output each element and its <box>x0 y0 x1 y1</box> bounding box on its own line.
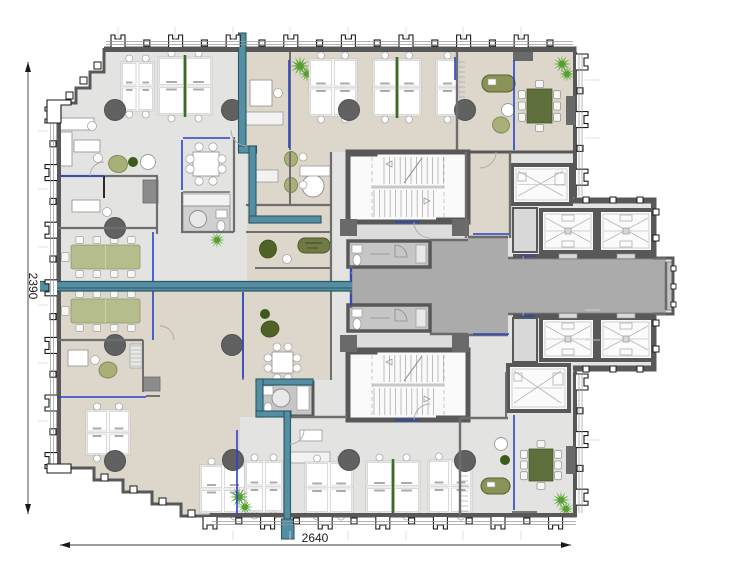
svg-text:2640: 2640 <box>302 531 329 545</box>
svg-text:2390: 2390 <box>26 273 40 300</box>
